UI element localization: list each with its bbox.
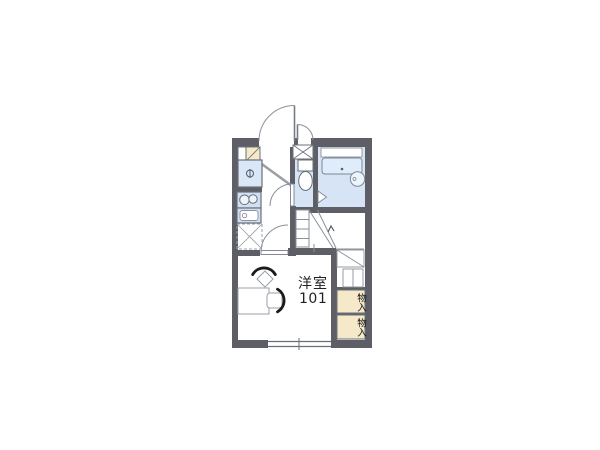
staircase — [296, 210, 364, 253]
washing-machine-space — [237, 224, 262, 249]
room-door-swing — [261, 225, 288, 255]
toilet — [298, 160, 313, 191]
kitchen-sink — [237, 208, 261, 223]
wash-basin — [350, 172, 364, 186]
entry-cabinet — [238, 147, 246, 161]
toilet-door-swing — [270, 184, 294, 206]
utility-closet — [293, 145, 313, 159]
stair-slope-line — [259, 162, 292, 186]
entrance-door-swing — [259, 106, 295, 142]
refrigerator-space — [238, 160, 262, 187]
bath-counter — [321, 148, 362, 157]
window — [268, 338, 331, 350]
room-name-label: 洋室 — [298, 277, 328, 292]
chair-1 — [253, 268, 276, 287]
under-stair-storage — [337, 250, 364, 287]
chair-2 — [267, 289, 284, 312]
closet-label-1: 物入 — [337, 292, 365, 313]
shoe-cabinet — [246, 147, 260, 161]
floor-plan-image: 洋室 101 物入 物入 — [0, 0, 600, 450]
utility-door-swing — [298, 125, 314, 141]
room-number-label: 101 — [299, 292, 327, 307]
gas-stove — [237, 192, 261, 208]
closet-label-2: 物入 — [337, 317, 365, 338]
table — [238, 288, 269, 314]
floor-plan-drawing — [0, 0, 600, 450]
